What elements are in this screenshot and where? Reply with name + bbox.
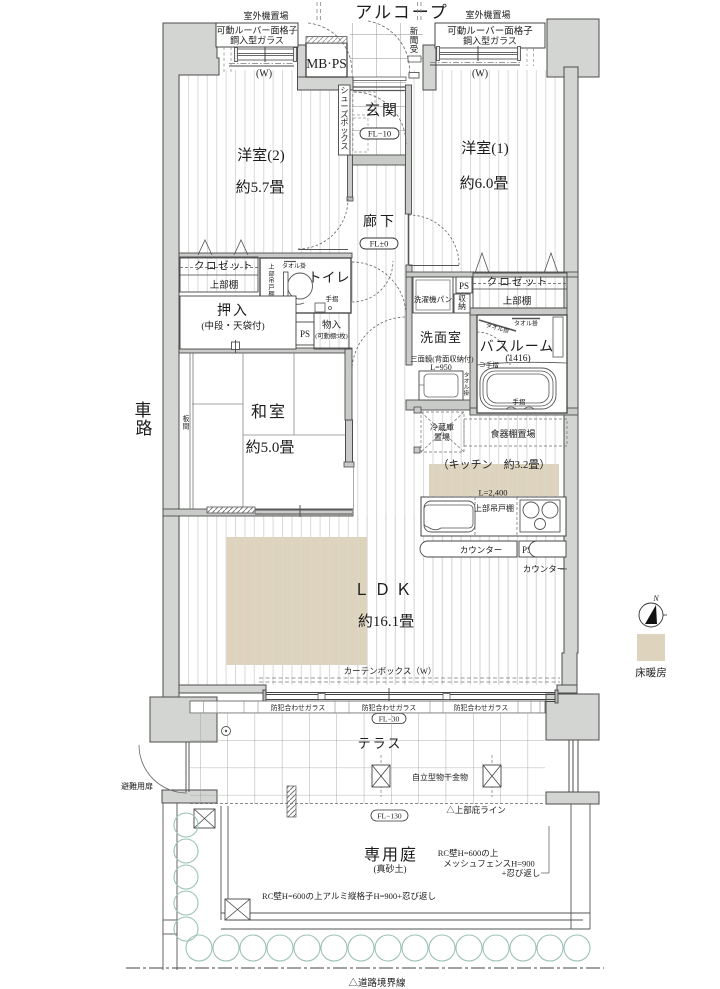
svg-text:室外機置場: 室外機置場 — [465, 9, 510, 20]
svg-text:置場: 置場 — [434, 432, 450, 442]
svg-text:室外機置場: 室外機置場 — [243, 10, 288, 21]
svg-text:タオル掛: タオル掛 — [464, 371, 470, 397]
svg-text:避難用扉: 避難用扉 — [121, 781, 153, 791]
svg-text:バスルーム: バスルーム — [480, 340, 555, 355]
svg-text:防犯合わせガラス: 防犯合わせガラス — [454, 703, 508, 712]
svg-text:PS: PS — [459, 281, 469, 291]
svg-text:上部吊戸棚: 上部吊戸棚 — [474, 503, 514, 513]
svg-text:手摺: 手摺 — [513, 397, 527, 406]
svg-text:専用庭: 専用庭 — [364, 846, 418, 864]
svg-text:手摺: 手摺 — [326, 294, 340, 303]
svg-text:クロゼット: クロゼット — [487, 276, 550, 288]
svg-text:防犯合わせガラス: 防犯合わせガラス — [271, 703, 325, 712]
svg-text:N: N — [652, 594, 659, 603]
svg-text:PS: PS — [300, 329, 310, 339]
svg-text:シューズボックス: シューズボックス — [341, 86, 349, 151]
svg-text:鋼入型ガラス: 鋼入型ガラス — [463, 35, 517, 46]
svg-text:FL−10: FL−10 — [368, 129, 391, 139]
svg-text:△道路境界線: △道路境界線 — [348, 977, 406, 989]
svg-text:上部棚: 上部棚 — [503, 295, 532, 307]
svg-text:路: 路 — [136, 419, 153, 438]
svg-text:メッシュフェンスH=900: メッシュフェンスH=900 — [443, 859, 535, 869]
svg-text:タオル掛: タオル掛 — [282, 262, 306, 270]
svg-text:⊃手摺: ⊃手摺 — [479, 360, 499, 369]
svg-text:約5.7畳: 約5.7畳 — [236, 179, 285, 196]
svg-text:約5.0畳: 約5.0畳 — [246, 439, 295, 456]
svg-text:カーテンボックス（W）: カーテンボックス（W） — [344, 666, 437, 676]
svg-text:+忍び返し: +忍び返し — [502, 868, 541, 878]
svg-text:アルコープ: アルコープ — [355, 3, 448, 22]
svg-text:上部吊戸棚: 上部吊戸棚 — [268, 263, 274, 298]
svg-text:食器棚置場: 食器棚置場 — [490, 428, 535, 439]
svg-text:車: 車 — [135, 401, 152, 420]
svg-text:鋼入型ガラス: 鋼入型ガラス — [230, 35, 284, 46]
svg-text:(W): (W) — [256, 69, 272, 80]
svg-text:物入: 物入 — [322, 319, 342, 331]
svg-text:タオル掛: タオル掛 — [514, 320, 538, 328]
svg-text:床暖房: 床暖房 — [635, 666, 667, 679]
svg-text:自立型物干金物: 自立型物干金物 — [412, 772, 468, 782]
svg-text:トイレ: トイレ — [308, 270, 350, 285]
svg-text:ＬＤＫ: ＬＤＫ — [353, 582, 416, 599]
svg-text:約16.1畳: 約16.1畳 — [358, 613, 414, 630]
svg-text:可動ルーバー面格子: 可動ルーバー面格子 — [217, 25, 298, 36]
svg-text:RC壁H=600の上アルミ縦格子H=900+忍び返し: RC壁H=600の上アルミ縦格子H=900+忍び返し — [262, 891, 436, 901]
svg-text:洗面室: 洗面室 — [420, 330, 462, 345]
svg-text:押入: 押入 — [217, 303, 249, 319]
svg-text:クロゼット: クロゼット — [194, 260, 254, 272]
svg-text:FL−130: FL−130 — [377, 812, 401, 821]
svg-text:廊下: 廊下 — [363, 213, 397, 230]
svg-text:(可動棚5枚): (可動棚5枚) — [315, 331, 348, 340]
svg-text:（キッチン 約3.2畳）: （キッチン 約3.2畳） — [438, 457, 551, 471]
svg-text:冷蔵庫: 冷蔵庫 — [430, 422, 454, 432]
svg-text:洋室(2): 洋室(2) — [237, 147, 285, 164]
svg-text:防犯合わせガラス: 防犯合わせガラス — [362, 703, 416, 712]
svg-text:MB·PS: MB·PS — [306, 56, 347, 71]
svg-text:洗濯機パン: 洗濯機パン — [414, 294, 452, 304]
svg-text:和室: 和室 — [251, 403, 287, 421]
svg-text:板間: 板間 — [183, 414, 190, 431]
svg-text:洋室(1): 洋室(1) — [461, 140, 509, 157]
svg-text:約6.0畳: 約6.0畳 — [460, 175, 509, 192]
svg-text:L=2,400: L=2,400 — [478, 488, 507, 498]
svg-text:RC壁H=600の上: RC壁H=600の上 — [438, 848, 499, 858]
svg-text:カウンター: カウンター — [523, 564, 566, 574]
svg-text:上部棚: 上部棚 — [210, 279, 239, 291]
svg-text:FL±0: FL±0 — [370, 239, 389, 249]
svg-text:収納: 収納 — [458, 293, 466, 311]
svg-text:(W): (W) — [472, 69, 488, 80]
svg-text:新聞受: 新聞受 — [410, 26, 419, 54]
svg-text:△上部庇ライン: △上部庇ライン — [446, 805, 506, 815]
svg-text:テラス: テラス — [358, 736, 403, 751]
svg-text:(真砂土): (真砂土) — [374, 863, 407, 874]
svg-text:(中段・天袋付): (中段・天袋付) — [201, 320, 264, 332]
svg-text:カウンター: カウンター — [460, 545, 503, 555]
